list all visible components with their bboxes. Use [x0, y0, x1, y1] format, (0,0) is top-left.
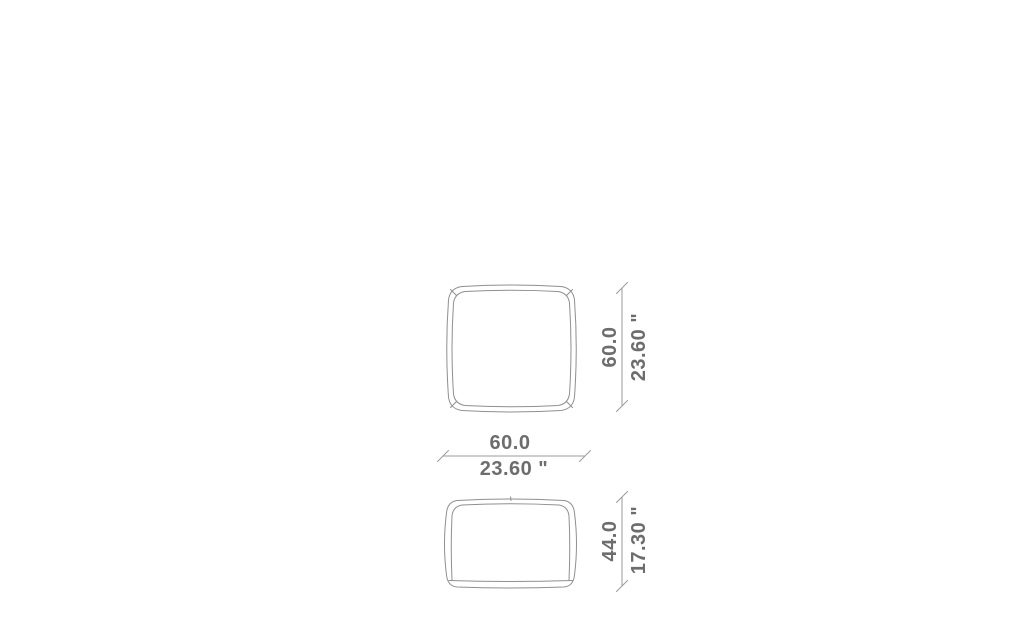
depth-dimension-inch-label: 23.60 " — [629, 313, 649, 382]
furniture-dimension-drawing: 60.0 23.60 " 60.0 23.60 " 44.0 17.30 " — [0, 0, 1024, 640]
width-dimension-inch-label: 23.60 " — [480, 459, 549, 479]
depth-dimension-cm-label: 60.0 — [600, 327, 620, 368]
dimension-lines — [0, 0, 1024, 640]
height-dimension-cm-label: 44.0 — [600, 521, 620, 562]
width-dimension-cm-label: 60.0 — [490, 433, 531, 453]
height-dimension-inch-label: 17.30 " — [629, 506, 649, 575]
